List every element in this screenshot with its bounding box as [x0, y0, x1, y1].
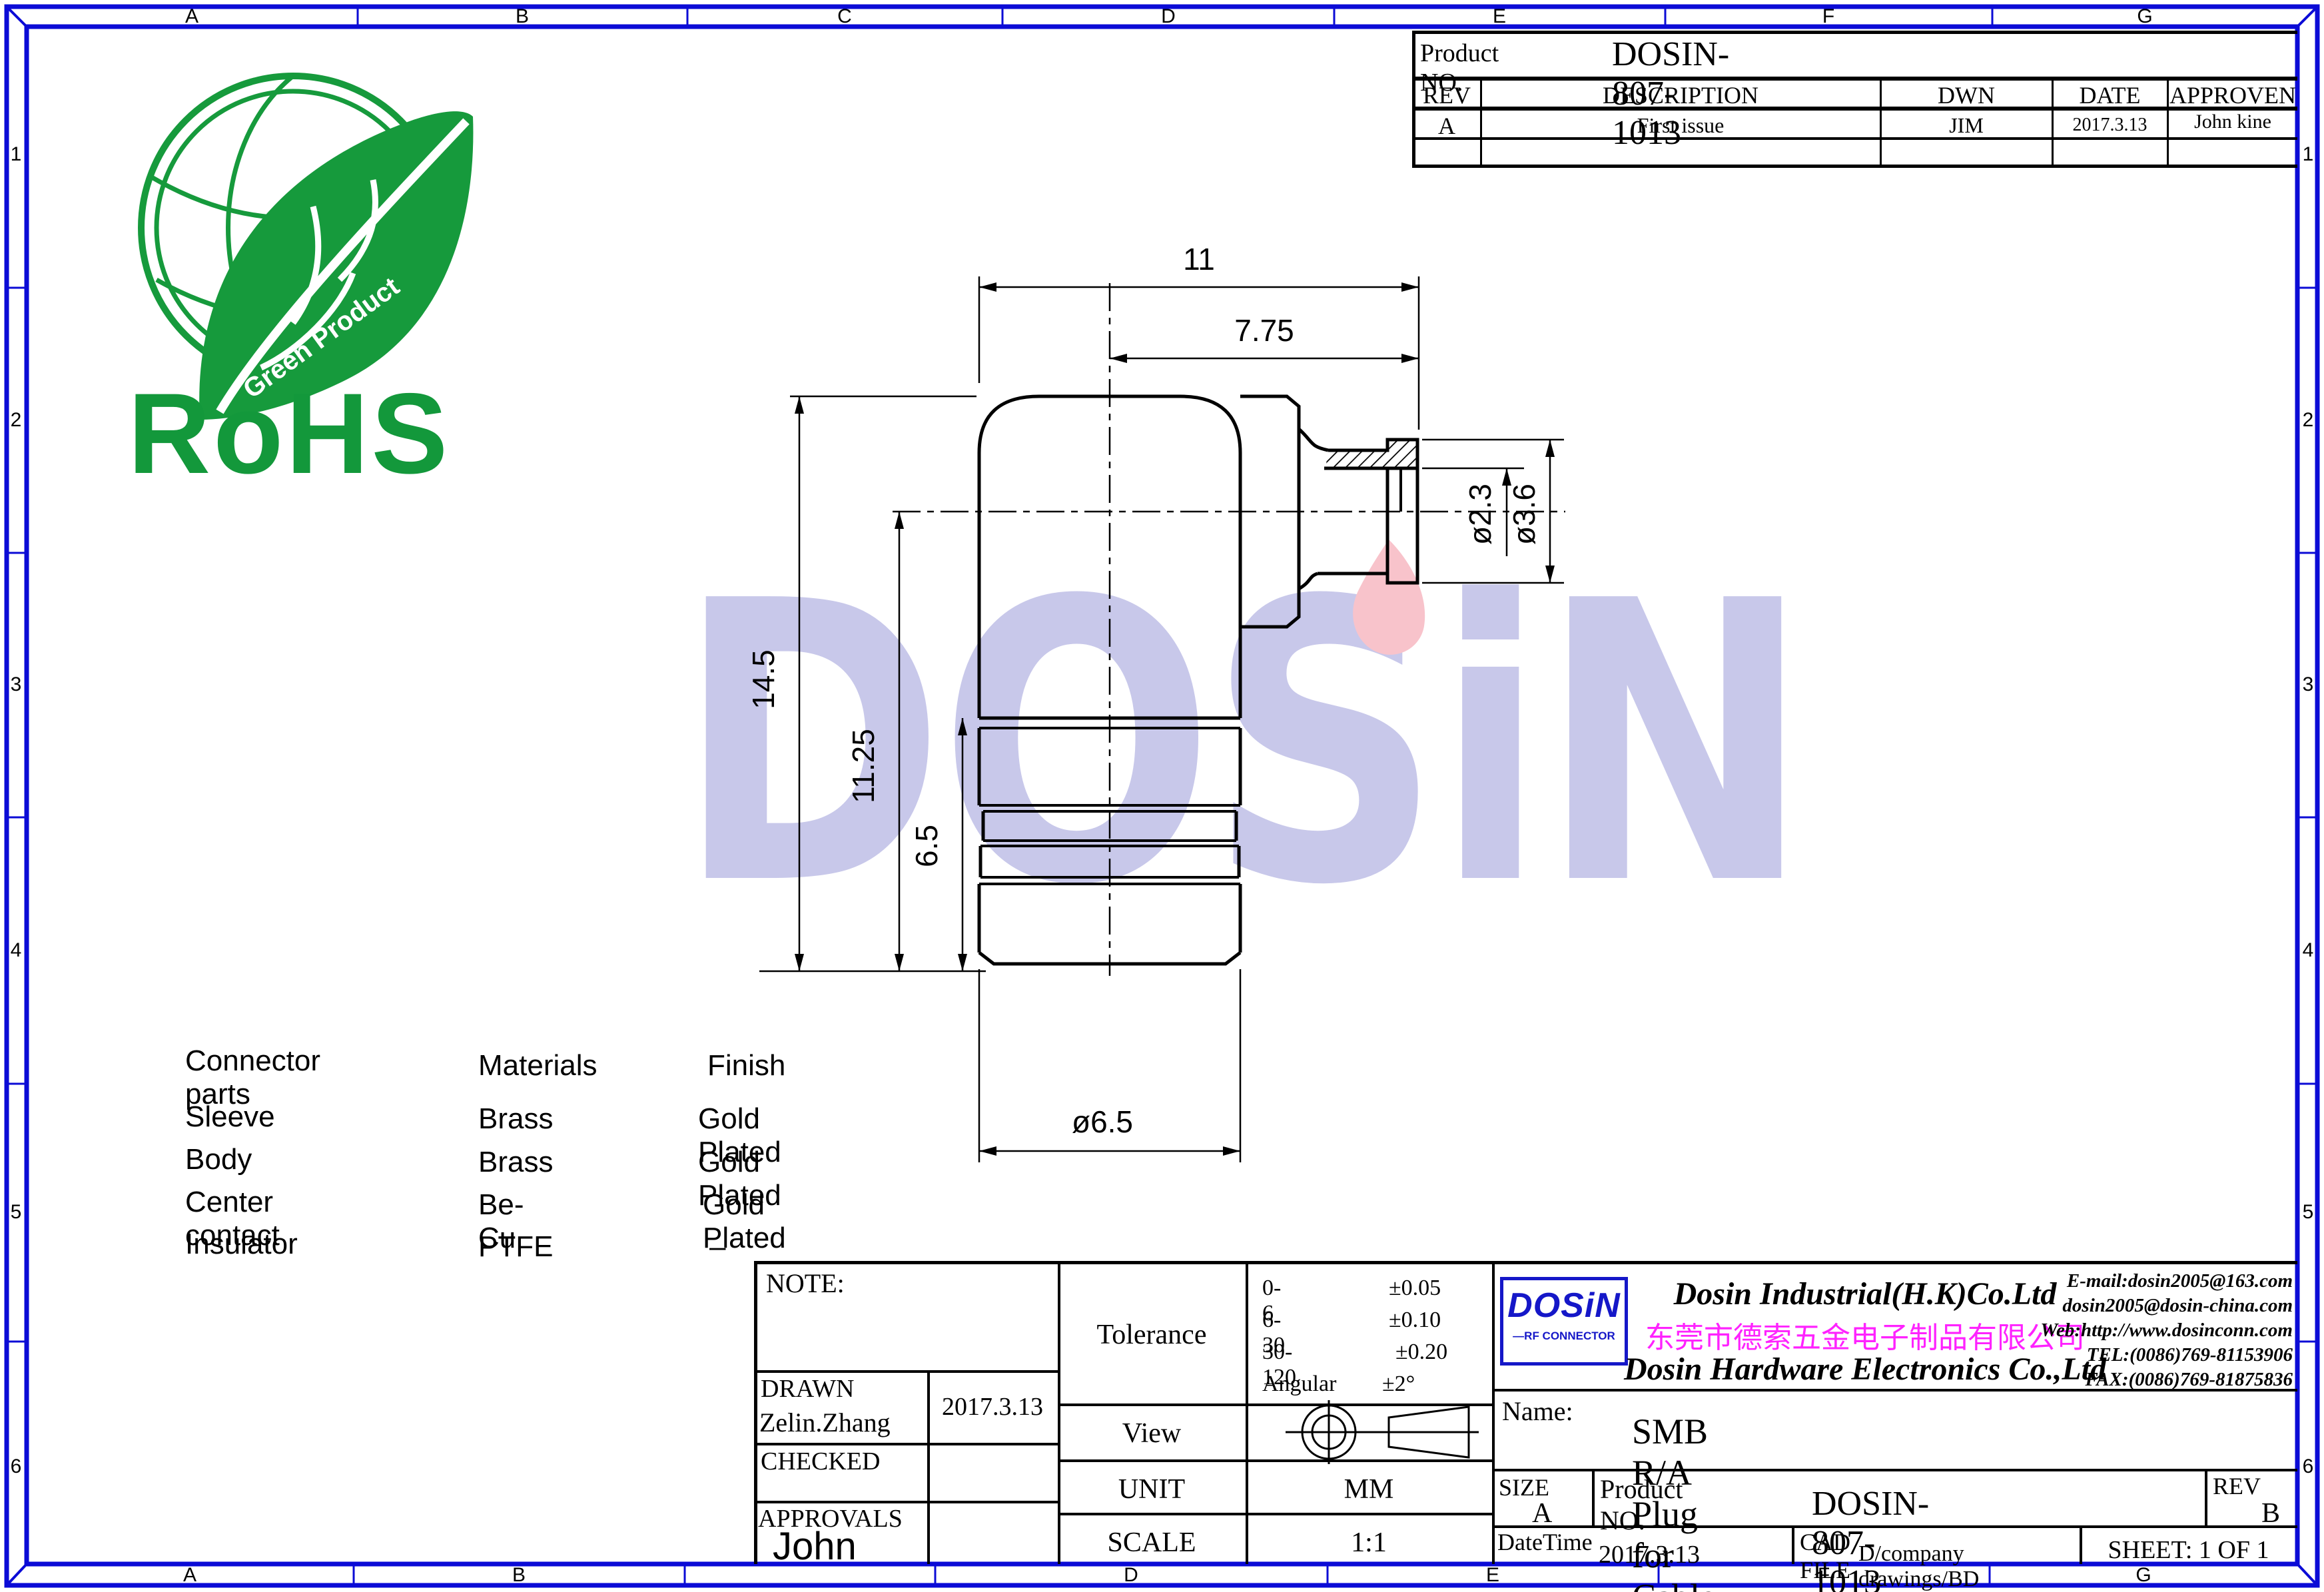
approven-header: APPROVEN	[2168, 81, 2297, 109]
drawn-name: Zelin.Zhang	[759, 1407, 891, 1438]
dosin-logo: DOSiN —RF CONNECTOR	[1500, 1277, 1628, 1366]
grid-row-label: 5	[11, 1201, 22, 1224]
view-label: View	[1058, 1417, 1246, 1449]
dosin-logo-text: DOSiN	[1503, 1286, 1625, 1326]
dim-height-to-center: 11.25	[846, 729, 881, 803]
grid-col-label: D	[1124, 1564, 1138, 1587]
dim-height-total: 14.5	[746, 649, 781, 709]
grid-row-label: 6	[11, 1455, 22, 1478]
company-web: Web:http://www.dosinconn.com	[2018, 1318, 2293, 1343]
rev-cell: A	[1413, 112, 1480, 140]
material-name: Brass	[478, 1102, 553, 1136]
company-email: E-mail:dosin2005@163.com	[2018, 1269, 2293, 1294]
rev-header: REV	[1413, 81, 1480, 109]
grid-col-label: E	[1486, 1564, 1499, 1587]
grid-row-label: 1	[2303, 143, 2314, 166]
grid-col-label: A	[183, 1564, 196, 1587]
company-fax: FAX:(0086)769-81875836	[2018, 1368, 2293, 1392]
grid-col-label: F	[1822, 5, 1834, 28]
tolerance-value: ±0.20	[1395, 1340, 1447, 1365]
tolerance-value: ±2°	[1382, 1372, 1415, 1397]
dim-width-total: 11	[1183, 242, 1215, 276]
grid-col-label: C	[837, 5, 852, 28]
cad-file-value: D/company drawings/BD	[1858, 1541, 1979, 1592]
rev-label: REV	[2213, 1472, 2261, 1500]
scale-value: 1:1	[1246, 1527, 1492, 1559]
grid-col-label: E	[1493, 5, 1506, 28]
datetime-label: DateTime	[1497, 1528, 1593, 1556]
grid-row-label: 4	[2303, 939, 2314, 962]
drawn-label: DRAWN	[761, 1374, 855, 1403]
material-part: Sleeve	[185, 1100, 275, 1134]
material-name: Brass	[478, 1146, 553, 1179]
grid-col-label: G	[2137, 5, 2152, 28]
dim-width-to-center: 7.75	[1234, 313, 1294, 348]
material-name: PTFE	[478, 1230, 553, 1264]
grid-col-label: D	[1161, 5, 1176, 28]
grid-row-label: 4	[11, 939, 22, 962]
sheet-value: SHEET: 1 OF 1	[2080, 1535, 2297, 1565]
grid-col-label: B	[512, 1564, 526, 1587]
material-finish: –	[709, 1230, 725, 1264]
grid-row-label: 1	[11, 143, 22, 166]
grid-col-label: A	[185, 5, 198, 28]
company-email2: dosin2005@dosin-china.com	[2018, 1294, 2293, 1318]
drawn-date: 2017.3.13	[927, 1392, 1058, 1421]
dim-dia-barrel: ø3.6	[1507, 484, 1541, 545]
tolerance-label: Tolerance	[1058, 1319, 1246, 1351]
engineering-drawing-page: DOSiN A B C D E F G A B D E F G 1 2 3 4	[0, 0, 2324, 1592]
rohs-title: RoHS	[128, 370, 450, 486]
material-part: Insulator	[185, 1228, 298, 1261]
datetime-value: 2017.3.13	[1599, 1540, 1700, 1569]
rev-value: B	[2261, 1497, 2280, 1529]
description-header: DESCRIPTION	[1481, 81, 1880, 109]
grid-row-label: 3	[11, 673, 22, 696]
materials-header-finish: Finish	[707, 1049, 785, 1082]
centerlines	[893, 283, 1565, 976]
tolerance-value: ±0.10	[1389, 1308, 1441, 1333]
approven-cell: John kine	[2168, 111, 2297, 133]
unit-label: UNIT	[1058, 1473, 1246, 1505]
description-cell: First issue	[1481, 113, 1880, 138]
dosin-logo-subtext: —RF CONNECTOR	[1503, 1330, 1625, 1343]
grid-col-label: B	[516, 5, 529, 28]
scale-label: SCALE	[1058, 1527, 1246, 1559]
date-cell: 2017.3.13	[2053, 115, 2167, 136]
rohs-logo: Green Product RoHS	[93, 47, 493, 486]
materials-header-material: Materials	[478, 1049, 597, 1082]
grid-row-label: 3	[2303, 673, 2314, 696]
size-value: A	[1532, 1497, 1552, 1529]
dim-dia-body: ø6.5	[1072, 1104, 1133, 1139]
name-label: Name:	[1502, 1395, 1573, 1427]
tolerance-value: ±0.05	[1389, 1276, 1441, 1301]
material-part: Body	[185, 1143, 252, 1176]
dwn-header: DWN	[1881, 81, 2052, 109]
cad-file-label: CAD FILE	[1800, 1528, 1850, 1584]
dim-dia-contact: ø2.3	[1463, 484, 1497, 545]
projection-view-icon	[1279, 1399, 1485, 1465]
dimension-labels: 11 7.75 14.5 11.25 6.5 ø6.5 ø2.3 ø3.6	[746, 242, 1541, 1139]
date-header: DATE	[2053, 81, 2167, 109]
tolerance-range: Angular	[1262, 1372, 1336, 1397]
grid-col-label: G	[2135, 1564, 2151, 1587]
unit-value: MM	[1246, 1473, 1492, 1505]
grid-row-label: 2	[2303, 409, 2314, 432]
product-no-label-bottom: Product NO.	[1600, 1473, 1683, 1536]
note-label: NOTE:	[766, 1268, 845, 1299]
section-hatch	[1326, 440, 1417, 468]
connector-drawing: 11 7.75 14.5 11.25 6.5 ø6.5 ø2.3 ø3.6	[699, 220, 1632, 1206]
company-contacts: E-mail:dosin2005@163.com dosin2005@dosin…	[2018, 1269, 2293, 1393]
approvals-signature: John	[773, 1524, 857, 1569]
grid-row-label: 6	[2303, 1455, 2314, 1478]
dim-height-lower: 6.5	[909, 825, 944, 867]
grid-row-label: 2	[11, 409, 22, 432]
dwn-cell: JIM	[1881, 113, 2052, 138]
checked-label: CHECKED	[761, 1447, 880, 1476]
grid-row-label: 5	[2303, 1201, 2314, 1224]
company-tel: TEL:(0086)769-81153906	[2018, 1343, 2293, 1368]
